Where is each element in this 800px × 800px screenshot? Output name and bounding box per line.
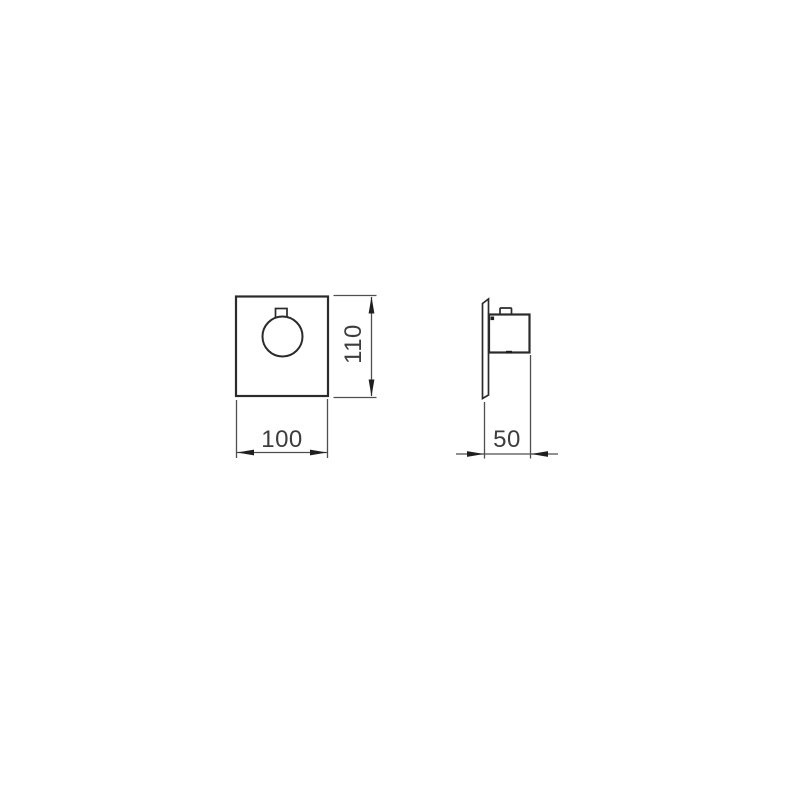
front-height-dimension: 110 — [334, 296, 377, 398]
height-arrow-down-icon — [369, 380, 375, 397]
side-depth-dimension: 50 — [456, 355, 558, 459]
side-knob-bottom-mark — [506, 351, 512, 354]
side-view — [483, 299, 530, 399]
side-knob-screw-dot — [491, 317, 495, 321]
height-dimension-label: 110 — [340, 324, 367, 364]
technical-drawing-canvas: 110 100 — [0, 0, 800, 800]
depth-dimension-label: 50 — [493, 426, 521, 453]
width-dimension-label: 100 — [261, 426, 303, 453]
depth-arrow-left-icon — [531, 451, 548, 457]
front-view — [236, 297, 328, 397]
width-arrow-left-icon — [237, 450, 254, 456]
front-width-dimension: 100 — [237, 399, 328, 458]
depth-arrow-right-icon — [467, 451, 484, 457]
side-knob-body — [489, 315, 530, 353]
front-knob — [263, 317, 303, 357]
side-plate-profile — [483, 299, 489, 399]
width-arrow-right-icon — [310, 450, 327, 456]
drawing-page: 110 100 — [0, 0, 800, 800]
height-arrow-up-icon — [369, 297, 375, 314]
